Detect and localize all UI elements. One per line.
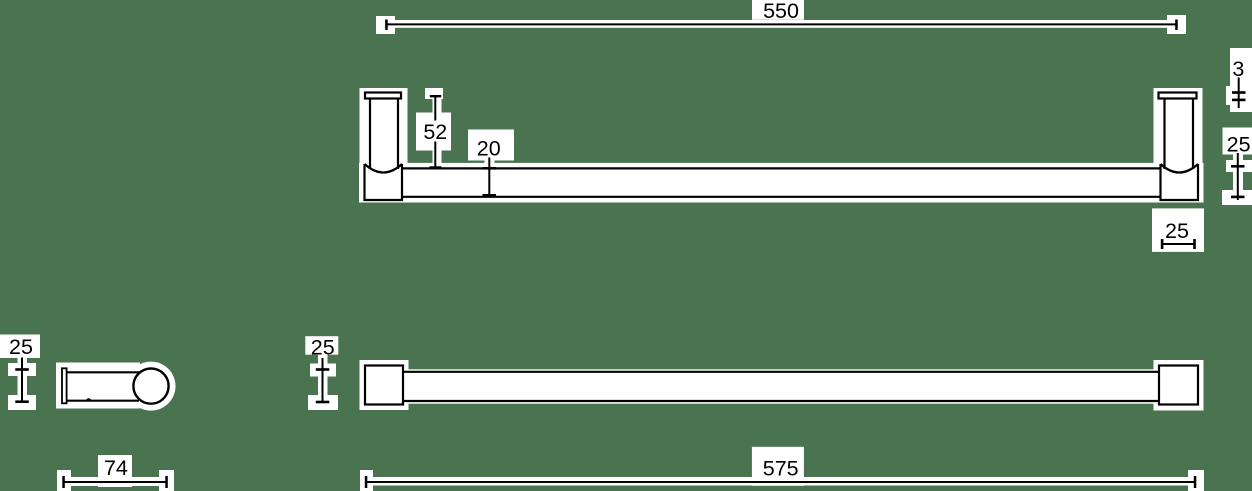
svg-text:52: 52 bbox=[423, 120, 447, 144]
svg-text:3: 3 bbox=[1232, 57, 1244, 81]
svg-text:575: 575 bbox=[763, 457, 799, 481]
svg-text:550: 550 bbox=[763, 0, 799, 23]
svg-text:25: 25 bbox=[9, 335, 33, 359]
svg-text:20: 20 bbox=[477, 137, 501, 161]
svg-text:74: 74 bbox=[104, 456, 128, 480]
svg-text:25: 25 bbox=[1227, 133, 1251, 157]
svg-text:25: 25 bbox=[1165, 219, 1189, 243]
svg-text:25: 25 bbox=[311, 335, 335, 359]
